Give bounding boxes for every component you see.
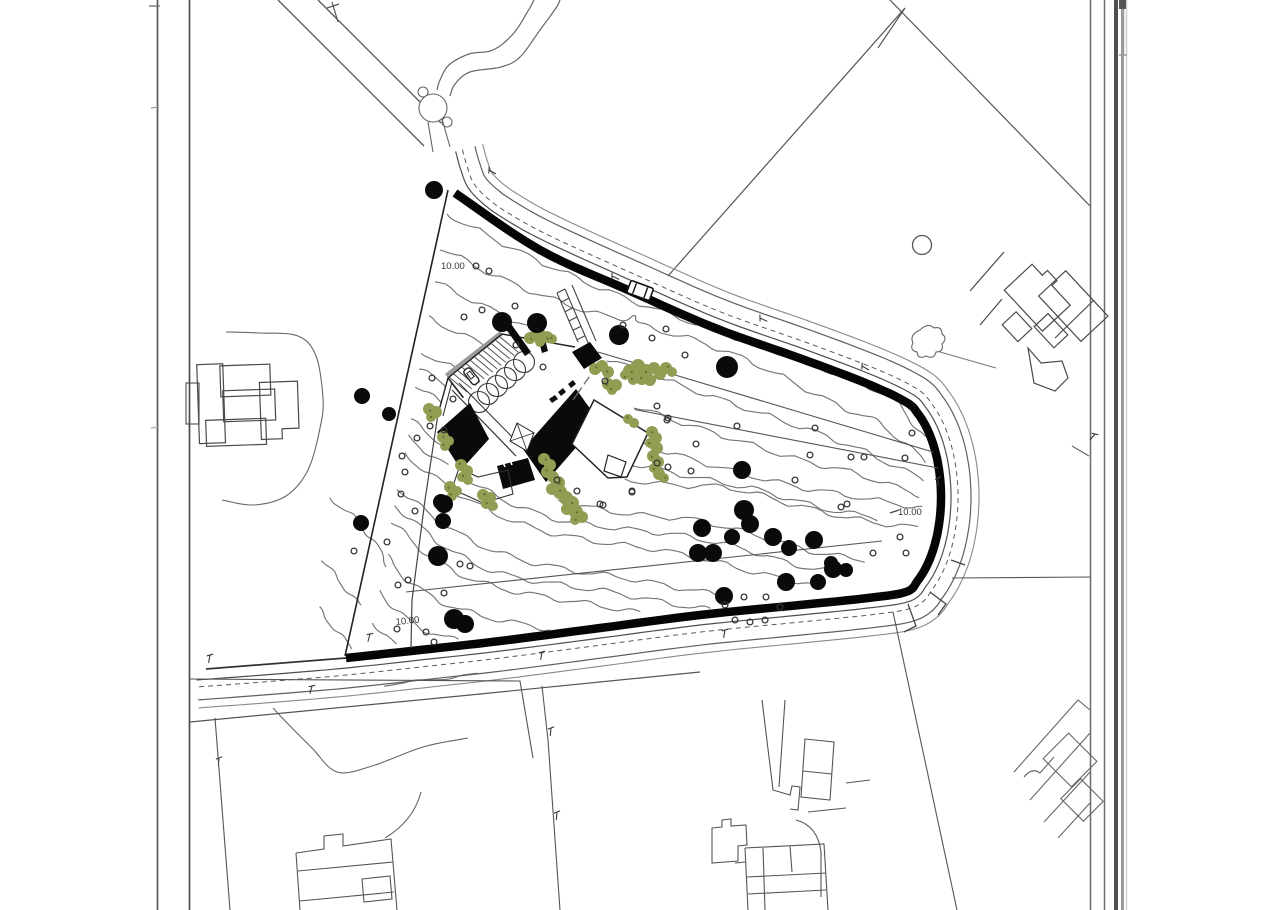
svg-text:10.00: 10.00 xyxy=(898,507,922,518)
svg-text:10.00: 10.00 xyxy=(441,261,465,272)
